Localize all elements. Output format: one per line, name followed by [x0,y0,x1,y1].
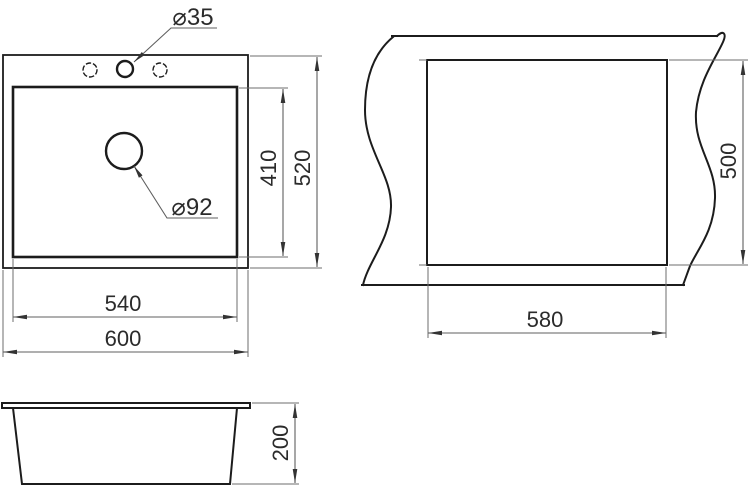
faucet-hole-callout: ⌀35 [134,4,217,62]
dim-height: 200 [232,403,299,484]
leader-arrowhead [134,166,143,178]
drain-hole-callout: ⌀92 [134,166,218,221]
side-view: 200 [2,403,299,484]
faucet-hole-label: ⌀35 [172,4,213,31]
countertop-cutout-view: 580 500 [362,33,748,338]
sink-bowl-outline [13,87,237,257]
faucet-hole-leader [134,28,217,62]
countertop-break-line-left [363,37,393,285]
dim-overall-width-label: 600 [105,326,142,351]
drain-hole [106,133,142,169]
cutout-outline [427,60,667,265]
dim-cutout-width: 580 [428,267,666,338]
sink-dimension-drawing: ⌀35 ⌀92 540 600 410 [0,0,748,488]
sink-body-side [13,408,237,484]
dim-bowl-width-label: 540 [105,291,142,316]
accessory-hole-left [83,63,97,77]
accessory-hole-right [153,63,167,77]
leader-arrowhead [134,52,145,62]
dim-cutout-width-label: 580 [527,307,564,332]
dim-height-label: 200 [268,425,293,462]
drain-hole-label: ⌀92 [171,194,212,221]
dim-cutout-depth-label: 500 [716,143,741,180]
top-view: ⌀35 ⌀92 540 600 410 [3,4,322,357]
faucet-hole [117,61,133,77]
dim-bowl-depth-label: 410 [256,150,281,187]
dim-bowl-depth: 410 [239,88,288,257]
dim-overall-depth-label: 520 [290,150,315,187]
drawing-root: ⌀35 ⌀92 540 600 410 [0,0,748,488]
